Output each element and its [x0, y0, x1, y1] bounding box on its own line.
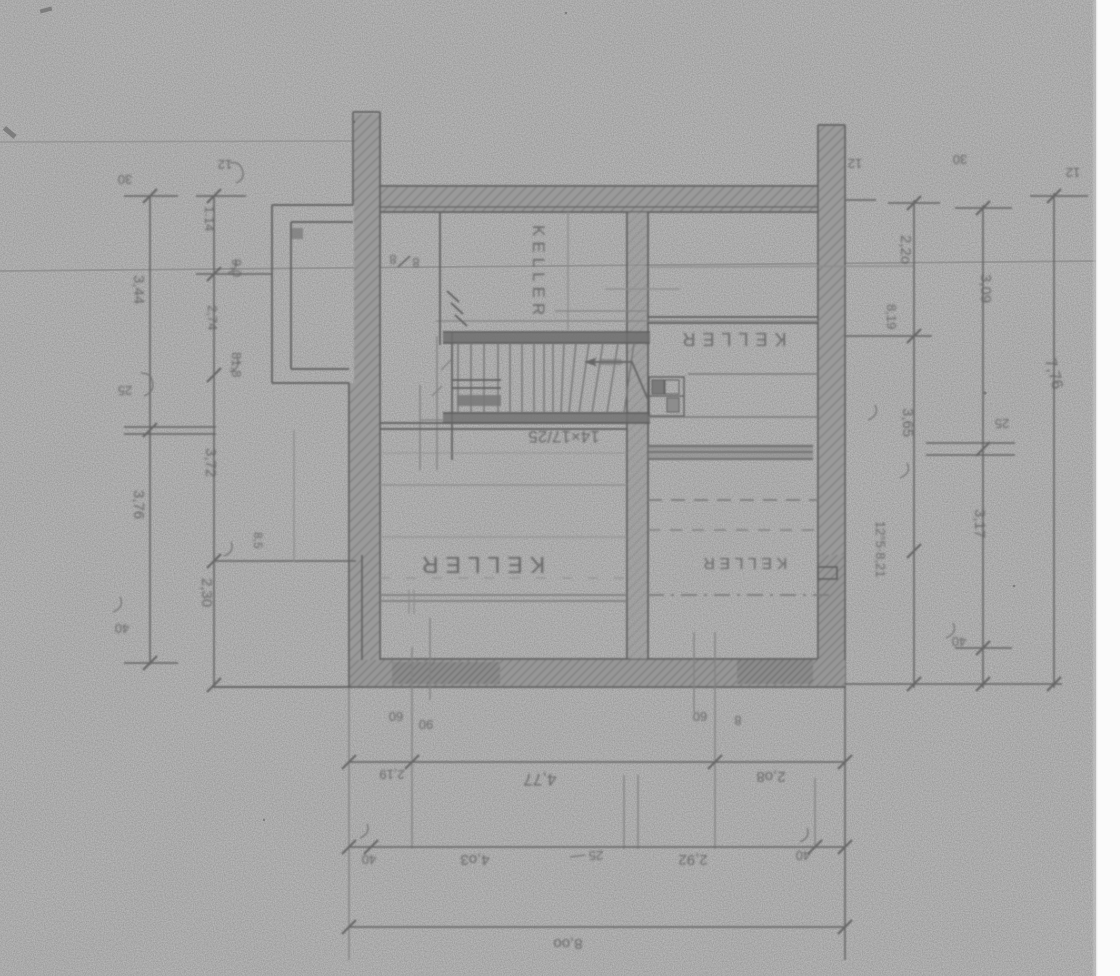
svg-text:8: 8 [734, 713, 741, 728]
svg-text:25: 25 [995, 416, 1009, 431]
svg-text:8,19: 8,19 [884, 304, 899, 329]
svg-text:12°5·8,21: 12°5·8,21 [873, 521, 888, 578]
svg-text:1.14: 1.14 [202, 206, 217, 231]
svg-text:3,09: 3,09 [977, 274, 994, 303]
svg-text:2,o8: 2,o8 [756, 768, 785, 785]
svg-text:12: 12 [218, 157, 232, 172]
svg-text:25: 25 [589, 848, 603, 863]
svg-text:40: 40 [362, 852, 376, 867]
svg-text:2,92: 2,92 [678, 851, 707, 868]
svg-text:14×17/25: 14×17/25 [528, 427, 599, 446]
svg-text:KELLER: KELLER [675, 329, 786, 349]
svg-text:4,o3: 4,o3 [460, 851, 489, 868]
svg-text:KELLER: KELLER [699, 554, 787, 571]
svg-text:40: 40 [796, 848, 810, 863]
svg-text:2,74: 2,74 [205, 305, 220, 330]
svg-text:3,72: 3,72 [202, 448, 219, 477]
svg-text:40: 40 [115, 621, 129, 636]
svg-text:60: 60 [389, 709, 403, 724]
svg-text:3,65: 3,65 [899, 408, 916, 437]
svg-text:3,44: 3,44 [130, 275, 147, 304]
svg-text:30: 30 [953, 152, 967, 167]
svg-text:8: 8 [412, 255, 419, 270]
svg-text:60: 60 [693, 709, 707, 724]
svg-text:8,5: 8,5 [251, 532, 265, 549]
svg-text:2,2o: 2,2o [897, 235, 914, 264]
svg-text:8: 8 [389, 252, 396, 267]
svg-text:9,0: 9,0 [229, 259, 244, 277]
svg-text:12: 12 [1066, 165, 1080, 180]
svg-text:12: 12 [848, 156, 862, 171]
svg-text:40: 40 [952, 634, 966, 649]
svg-text:2,30: 2,30 [198, 578, 215, 607]
svg-text:KELLER: KELLER [415, 552, 545, 578]
svg-text:3,76: 3,76 [130, 490, 147, 519]
svg-text:81,8: 81,8 [229, 352, 244, 377]
svg-text:2,19: 2,19 [379, 767, 404, 782]
svg-text:8,oo: 8,oo [553, 935, 582, 952]
svg-text:4,77: 4,77 [523, 770, 556, 789]
svg-text:25: 25 [118, 383, 132, 398]
svg-text:90: 90 [419, 717, 433, 732]
svg-text:3,17: 3,17 [971, 509, 988, 538]
svg-text:30: 30 [118, 172, 132, 187]
svg-text:KELLER: KELLER [529, 225, 548, 320]
